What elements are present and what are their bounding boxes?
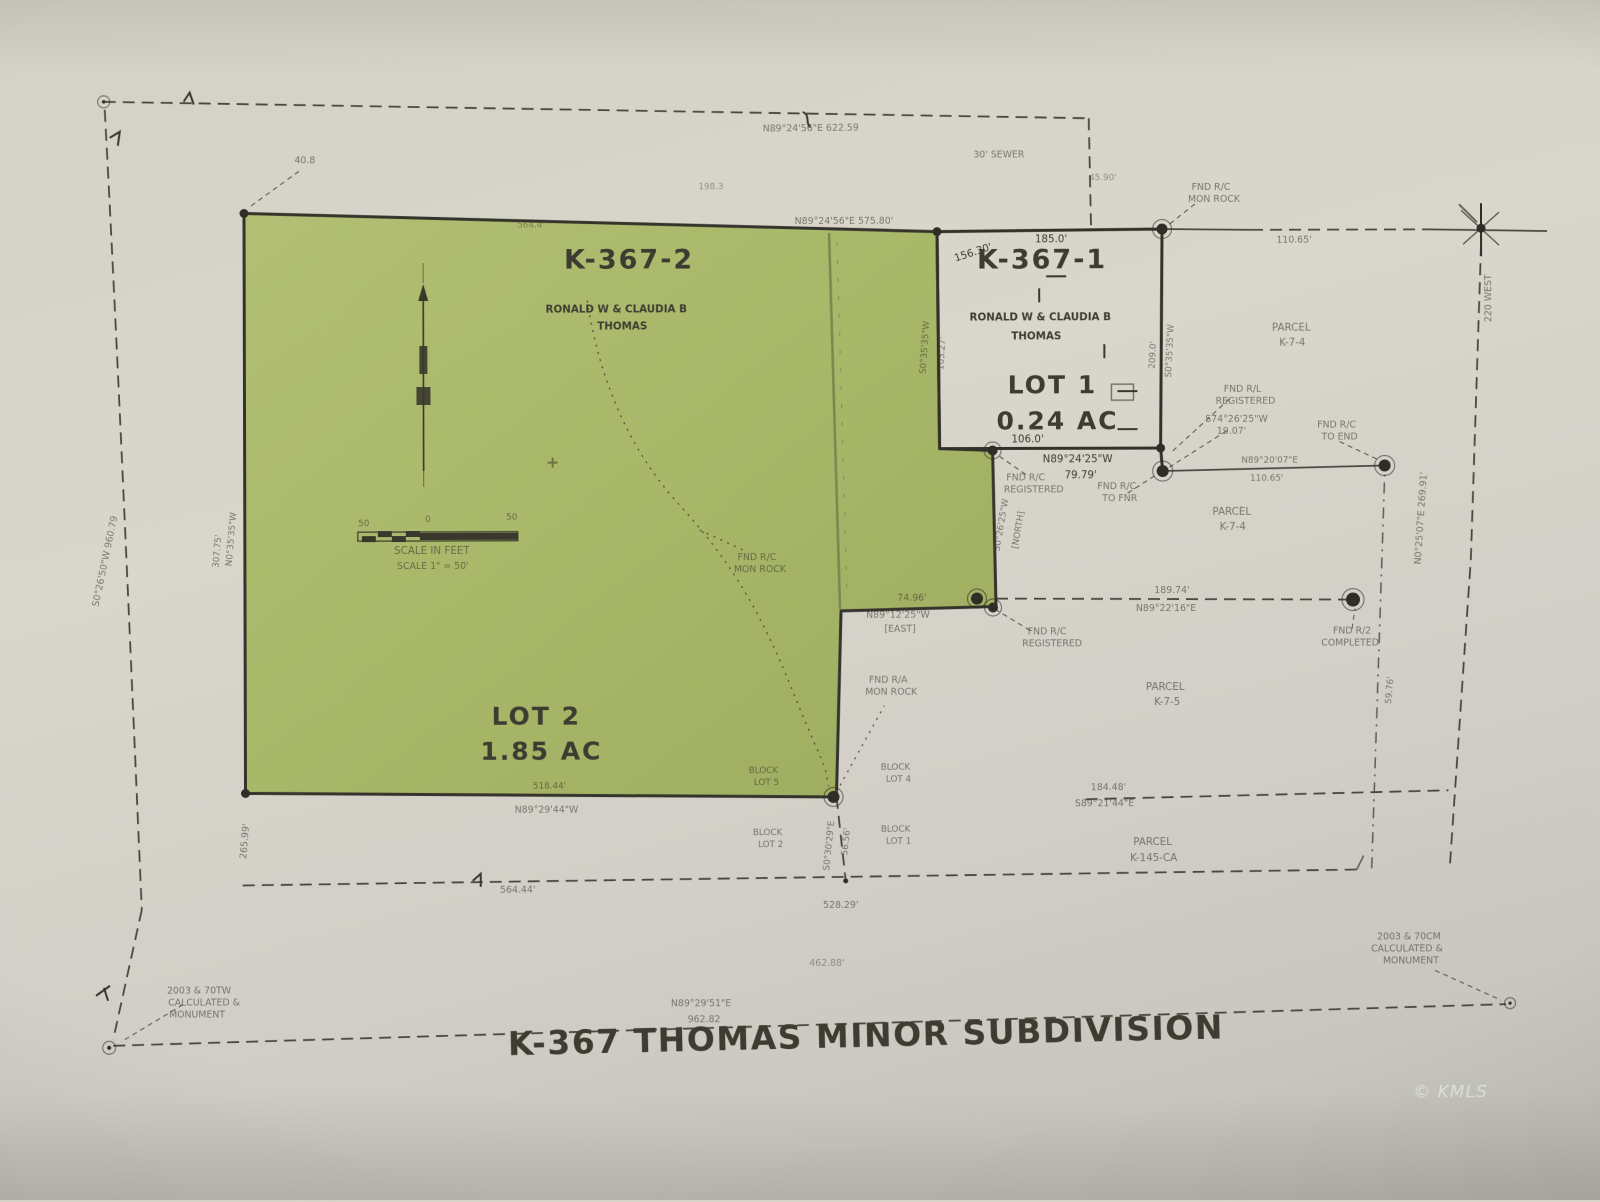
- dim-label: 518.44': [533, 782, 566, 792]
- dim-label: 45.90': [1089, 173, 1117, 183]
- dim-label: 40.8: [294, 155, 315, 166]
- dim-label: N89°24'25"W: [1043, 453, 1113, 465]
- found-marker-note: COMPLETED: [1321, 637, 1379, 648]
- monument-note: MONUMENT: [169, 1010, 225, 1021]
- monument-dot: [239, 209, 248, 218]
- monument-note: MONUMENT: [1383, 955, 1439, 966]
- block-label: BLOCK: [881, 763, 911, 773]
- monument-note: CALCULATED &: [1371, 943, 1444, 954]
- dim-label: 462.88': [809, 958, 844, 969]
- block-label: BLOCK: [749, 766, 779, 776]
- monument-circle: [1505, 998, 1516, 1009]
- dim-label: 962.82: [688, 1014, 721, 1025]
- easement-label: 30' SEWER: [973, 149, 1025, 160]
- parcel-label: K-7-5: [1154, 696, 1180, 708]
- dim-label: N89°20'07"E: [1241, 456, 1298, 466]
- dim-label: 209.0': [1148, 341, 1159, 369]
- found-marker-note: FND R/C: [737, 552, 776, 563]
- dim-label: 79.79': [1065, 469, 1097, 481]
- found-marker-note: FND R/C: [1097, 481, 1136, 492]
- dim-label: 564.44': [500, 885, 535, 896]
- parcel-label: K-145-CA: [1130, 852, 1177, 864]
- scale-tick: 50: [358, 519, 370, 529]
- dim-label: 307.75': [211, 534, 224, 568]
- lot2-owner: THOMAS: [597, 320, 647, 332]
- parcel-label: K-7-4: [1279, 337, 1305, 349]
- parcel-label: PARCEL: [1133, 836, 1172, 848]
- dim-label: S89°21'44"E: [1075, 798, 1134, 809]
- dim-label: 198.3: [698, 182, 723, 192]
- dim-label: 265.99': [238, 823, 252, 859]
- found-marker-note: TO FNR: [1101, 493, 1138, 504]
- dim-label: 59.76': [1384, 676, 1396, 704]
- monument-note: 2003 & 70TW: [167, 985, 231, 996]
- green-parcel-k-367-2: [244, 211, 997, 798]
- parcel-label: K-7-4: [1220, 521, 1246, 533]
- scale-tick: 0: [425, 515, 431, 525]
- plat-drawing: 50 0 50 SCALE IN FEET SCALE 1" = 50' K-3…: [0, 0, 1600, 1202]
- lot1-owner: THOMAS: [1011, 330, 1061, 342]
- dim-label: N89°24'56"E 622.59: [763, 122, 859, 134]
- monument-circle: [103, 1041, 116, 1054]
- found-marker-note: 19.07': [1217, 426, 1246, 437]
- monument-note: 2003 & 70CM: [1377, 931, 1441, 942]
- dim-label: 110.65': [1276, 235, 1311, 246]
- lot2-name: LOT 2: [492, 702, 582, 731]
- block-label: LOT 1: [886, 837, 911, 847]
- dim-label: N0°25'07"E 269.91': [1413, 472, 1430, 565]
- found-marker-note: FND R/C: [1006, 472, 1045, 483]
- lot2-area: 1.85 AC: [480, 737, 602, 766]
- lot2-owner: RONALD W & CLAUDIA B: [546, 303, 688, 315]
- found-marker-note: REGISTERED: [1004, 484, 1064, 495]
- found-marker-note: MON ROCK: [865, 687, 918, 698]
- scale-caption: SCALE IN FEET: [394, 545, 470, 557]
- lot2-id: K-367-2: [564, 244, 694, 275]
- block-label: LOT 2: [758, 840, 783, 850]
- found-marker-note: REGISTERED: [1022, 638, 1082, 649]
- lot1-name: LOT 1: [1008, 370, 1098, 399]
- lot1-owner: RONALD W & CLAUDIA B: [970, 311, 1112, 323]
- dim-label: N89°29'44"W: [515, 805, 579, 816]
- lot1-area: 0.24 AC: [996, 406, 1118, 435]
- watermark: © KMLS: [1413, 1082, 1488, 1102]
- dim-label: 110.65': [1250, 474, 1283, 484]
- found-marker-note: FND R/2: [1333, 626, 1371, 637]
- block-label: BLOCK: [753, 828, 783, 838]
- found-marker-note: MON ROCK: [1188, 194, 1241, 205]
- dim-label: S0°30'29"E: [822, 820, 837, 871]
- found-marker-note: FND R/A: [869, 675, 908, 686]
- dim-label: 184.48': [1091, 782, 1126, 793]
- dim-label: [EAST]: [884, 624, 915, 635]
- dim-label: 185.0': [1035, 233, 1067, 245]
- dim-label: 189.74': [1154, 585, 1189, 596]
- block-label: BLOCK: [881, 825, 911, 835]
- dim-label: N89°12'25"W: [866, 610, 930, 621]
- dim-label: [NORTH]: [1011, 511, 1027, 550]
- parcel-label: PARCEL: [1146, 681, 1185, 693]
- dim-label: 56.56': [840, 827, 853, 855]
- dim-label: N89°24'56"E 575.80': [795, 216, 894, 227]
- monument-dot: [1156, 444, 1165, 453]
- monument-dot: [933, 227, 942, 236]
- monument-note: CALCULATED &: [168, 997, 241, 1008]
- found-marker-note: FND R/C: [1317, 420, 1356, 431]
- parcel-label: PARCEL: [1272, 322, 1311, 334]
- found-marker-note: MON ROCK: [734, 564, 787, 575]
- scale-tick: 50: [506, 513, 518, 523]
- dim-label: 528.29': [823, 900, 858, 911]
- parcel-label: PARCEL: [1212, 506, 1251, 518]
- found-marker-note: REGISTERED: [1216, 396, 1276, 407]
- lot1-id: K-367-1: [977, 244, 1107, 275]
- dim-label: N0°35'35"W: [225, 512, 240, 567]
- plat-title: K-367 THOMAS MINOR SUBDIVISION: [507, 1007, 1224, 1063]
- found-marker-note: S74°26'25"W: [1205, 414, 1268, 425]
- found-marker-note: FND R/L: [1224, 384, 1262, 395]
- dim-label: 564.4': [517, 221, 545, 231]
- found-marker-note: FND R/C: [1191, 182, 1230, 193]
- dim-label: 106.0': [1011, 433, 1043, 445]
- dim-label: N89°29'51"E: [671, 998, 731, 1009]
- block-label: LOT 5: [754, 778, 779, 788]
- scale-note: SCALE 1" = 50': [397, 561, 469, 572]
- dim-label: 103.27': [936, 337, 948, 371]
- monument-dot: [241, 789, 250, 798]
- found-marker-note: TO END: [1320, 432, 1357, 443]
- found-marker-note: FND R/C: [1028, 626, 1067, 637]
- street-label: 220 WEST: [1483, 274, 1494, 322]
- scanned-plat-photo: 50 0 50 SCALE IN FEET SCALE 1" = 50' K-3…: [0, 0, 1600, 1200]
- block-label: LOT 4: [886, 775, 912, 785]
- dim-label: S0°35'35"W: [1164, 324, 1177, 378]
- dim-label: S0°26'50"W 960.79: [91, 515, 121, 608]
- dim-label: N89°22'16"E: [1136, 603, 1196, 614]
- dim-label: 74.96': [897, 593, 926, 604]
